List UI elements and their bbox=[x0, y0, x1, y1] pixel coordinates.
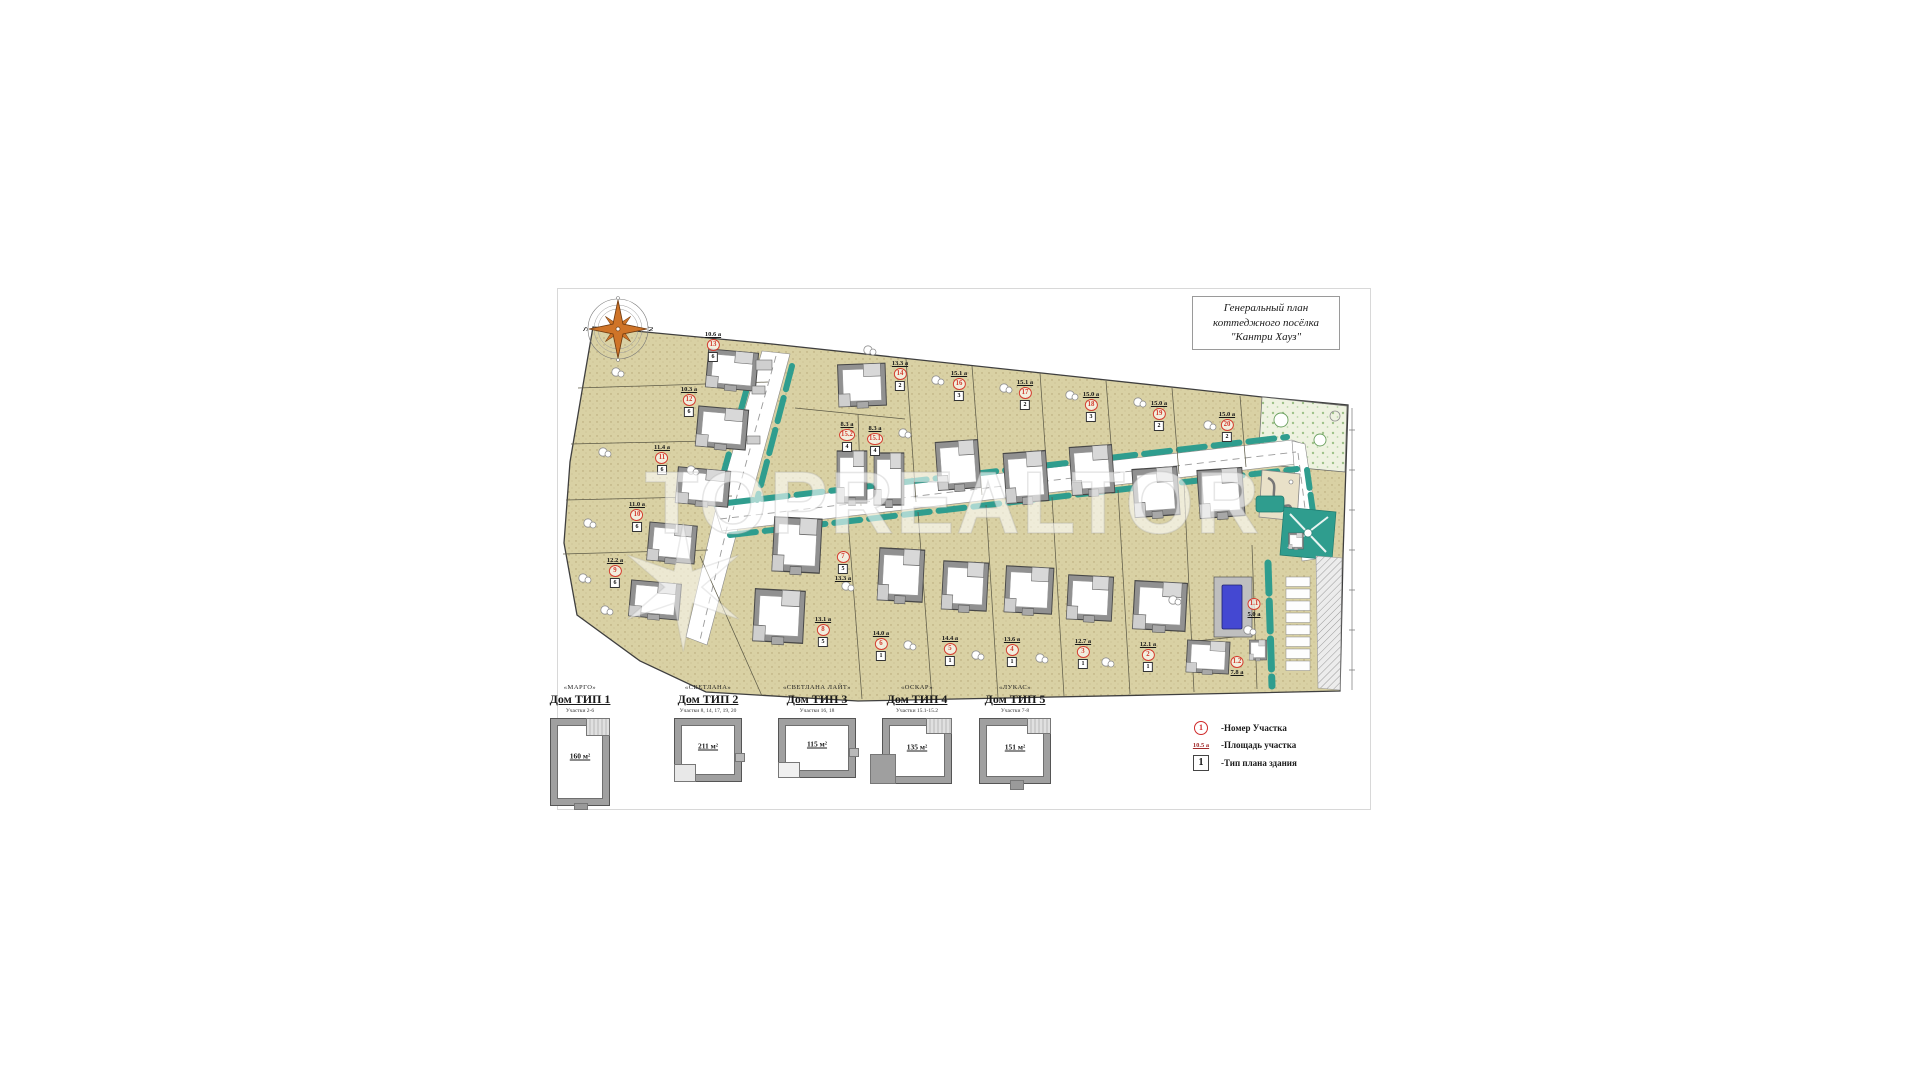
floor-plan-drawing: 115 м² bbox=[779, 719, 855, 777]
plot-house-type: 2 bbox=[1222, 432, 1232, 442]
floor-plan-porch bbox=[574, 803, 588, 810]
plot-area: 5.0 а bbox=[1248, 611, 1261, 618]
plot-house-type: 2 bbox=[1154, 421, 1164, 431]
plot-house-type: 2 bbox=[895, 381, 905, 391]
house-type-card-5: «ЛУКАС»Дом ТИП 5Участки 7-8151 м² bbox=[957, 684, 1073, 783]
house-type-name: «СВЕТЛАНА» bbox=[650, 684, 766, 691]
plan-title-box: Генеральный план коттеджного посёлка "Ка… bbox=[1192, 296, 1340, 350]
plot-label-18: 15.0 а183 bbox=[1083, 391, 1099, 422]
plot-label-9: 12.2 а96 bbox=[607, 557, 623, 588]
plot-label-12: 10.3 а126 bbox=[681, 386, 697, 417]
house-type-plots-note: Участки 2-6 bbox=[522, 708, 638, 714]
house-type-title: Дом ТИП 1 bbox=[522, 692, 638, 707]
plot-number: 2 bbox=[1142, 649, 1155, 661]
plot-house-type: 5 bbox=[838, 564, 848, 574]
plot-number: 18 bbox=[1085, 399, 1098, 411]
floor-plan-porch bbox=[926, 718, 952, 734]
plot-area: 11.0 а bbox=[629, 501, 645, 508]
plot-house-type: 4 bbox=[870, 446, 880, 456]
plot-house-type: 1 bbox=[876, 651, 886, 661]
house-type-card-3: «СВЕТЛАНА ЛАЙТ»Дом ТИП 3Участки 16, 1811… bbox=[759, 684, 875, 777]
house-type-title: Дом ТИП 2 bbox=[650, 692, 766, 707]
plot-label-1.2: 1.27.8 а bbox=[1231, 656, 1244, 676]
plot-label-15.2: 8.3 а15.24 bbox=[839, 421, 855, 452]
plot-label-4: 13.6 а41 bbox=[1004, 636, 1020, 667]
house-type-plots-note: Участки 16, 18 bbox=[759, 708, 875, 714]
house-type-plots-note: Участки 8, 14, 17, 19, 20 bbox=[650, 708, 766, 714]
legend-plot-number-symbol: 1 bbox=[1194, 721, 1208, 735]
plot-number: 15.2 bbox=[839, 429, 855, 441]
plan-title-line1: Генеральный план bbox=[1195, 301, 1337, 316]
house-type-area: 160 м² bbox=[570, 752, 590, 761]
plot-house-type: 1 bbox=[1078, 659, 1088, 669]
plot-area: 15.1 а bbox=[1017, 379, 1033, 386]
floor-plan-drawing: 151 м² bbox=[980, 719, 1050, 783]
plot-house-type: 6 bbox=[684, 407, 694, 417]
plan-title-line2: коттеджного посёлка bbox=[1195, 316, 1337, 331]
plot-label-16: 15.1 а163 bbox=[951, 370, 967, 401]
plot-area: 15.1 а bbox=[951, 370, 967, 377]
plot-number: 6 bbox=[875, 638, 888, 650]
plot-area: 7.8 а bbox=[1231, 669, 1244, 676]
plot-label-20: 15.0 а202 bbox=[1219, 411, 1235, 442]
compass-rose: S N bbox=[583, 294, 653, 364]
floor-plan-annex bbox=[586, 718, 610, 736]
house-type-title: Дом ТИП 3 bbox=[759, 692, 875, 707]
plot-area: 13.3 а bbox=[835, 575, 851, 582]
house-type-name: «СВЕТЛАНА ЛАЙТ» bbox=[759, 684, 875, 691]
floor-plan-porch bbox=[849, 748, 859, 757]
plot-area: 10.3 а bbox=[681, 386, 697, 393]
floor-plan-drawing: 135 м² bbox=[883, 719, 951, 783]
plot-house-type: 2 bbox=[1020, 400, 1030, 410]
floor-plan-annex bbox=[778, 762, 800, 778]
plot-label-8: 13.1 а85 bbox=[815, 616, 831, 647]
house-type-area: 151 м² bbox=[1005, 742, 1025, 751]
house-type-area: 135 м² bbox=[907, 742, 927, 751]
legend-row-house-type: 1 -Тип плана здания bbox=[1186, 755, 1346, 771]
legend-plot-area-label: -Площадь участка bbox=[1221, 740, 1296, 750]
plot-area: 13.3 а bbox=[892, 360, 908, 367]
plot-label-15.1: 8.3 а15.14 bbox=[867, 425, 883, 456]
house-type-plots-note: Участки 7-8 bbox=[957, 708, 1073, 714]
plot-label-14: 13.3 а142 bbox=[892, 360, 908, 391]
plot-house-type: 3 bbox=[954, 391, 964, 401]
plot-number: 15.1 bbox=[867, 433, 883, 445]
plot-area: 13.6 а bbox=[1004, 636, 1020, 643]
house-type-area: 115 м² bbox=[807, 740, 827, 749]
plot-house-type: 1 bbox=[1143, 662, 1153, 672]
plot-number: 16 bbox=[953, 378, 966, 390]
plot-number: 17 bbox=[1019, 387, 1032, 399]
plot-house-type: 6 bbox=[610, 578, 620, 588]
plot-label-17: 15.1 а172 bbox=[1017, 379, 1033, 410]
plot-number: 19 bbox=[1153, 408, 1166, 420]
plot-area: 10.6 а bbox=[705, 331, 721, 338]
house-type-name: «ЛУКАС» bbox=[957, 684, 1073, 691]
plot-house-type: 6 bbox=[708, 352, 718, 362]
plot-house-type: 1 bbox=[1007, 657, 1017, 667]
legend-row-plot-area: 10.5 а -Площадь участка bbox=[1186, 740, 1346, 750]
plot-area: 11.4 а bbox=[654, 444, 670, 451]
plot-number: 1.2 bbox=[1231, 656, 1244, 668]
plot-area: 12.1 а bbox=[1140, 641, 1156, 648]
plot-area: 12.7 а bbox=[1075, 638, 1091, 645]
house-type-card-1: «МАРГО»Дом ТИП 1Участки 2-6160 м² bbox=[522, 684, 638, 805]
plot-area: 15.0 а bbox=[1219, 411, 1235, 418]
plot-label-11: 11.4 а116 bbox=[654, 444, 670, 475]
legend-house-type-symbol: 1 bbox=[1193, 755, 1209, 771]
house-type-title: Дом ТИП 5 bbox=[957, 692, 1073, 707]
plot-label-5: 14.4 а51 bbox=[942, 635, 958, 666]
floor-plan-annex bbox=[1027, 718, 1051, 734]
legend-row-plot-number: 1 -Номер Участка bbox=[1186, 721, 1346, 735]
plot-label-6: 14.0 а61 bbox=[873, 630, 889, 661]
compass-east-label: N bbox=[647, 326, 653, 332]
plot-area: 13.1 а bbox=[815, 616, 831, 623]
plot-number: 9 bbox=[609, 565, 622, 577]
plot-number: 1.1 bbox=[1248, 598, 1261, 610]
swimming-pool bbox=[1222, 585, 1242, 629]
plot-label-7: 7513.3 а bbox=[835, 551, 851, 582]
plot-house-type: 6 bbox=[632, 522, 642, 532]
plot-number: 4 bbox=[1006, 644, 1019, 656]
plot-label-1.1: 1.15.0 а bbox=[1248, 598, 1261, 618]
plot-number: 12 bbox=[683, 394, 696, 406]
legend-house-type-label: -Тип плана здания bbox=[1221, 758, 1297, 768]
plot-area: 8.3 а bbox=[841, 421, 854, 428]
floor-plan-annex bbox=[870, 754, 896, 784]
plot-area: 15.0 а bbox=[1083, 391, 1099, 398]
plot-number: 3 bbox=[1077, 646, 1090, 658]
plot-number: 20 bbox=[1221, 419, 1234, 431]
house-type-name: «МАРГО» bbox=[522, 684, 638, 691]
plot-number: 10 bbox=[631, 509, 644, 521]
plot-number: 14 bbox=[894, 368, 907, 380]
plot-label-10: 11.0 а106 bbox=[629, 501, 645, 532]
plot-label-13: 10.6 а136 bbox=[705, 331, 721, 362]
plan-title-line3: "Кантри Хауз" bbox=[1195, 330, 1337, 345]
plot-area: 14.0 а bbox=[873, 630, 889, 637]
floor-plan-porch bbox=[735, 753, 745, 762]
plot-house-type: 6 bbox=[657, 465, 667, 475]
floor-plan-annex bbox=[674, 764, 696, 782]
floor-plan-porch bbox=[1010, 780, 1024, 790]
plot-house-type: 5 bbox=[818, 637, 828, 647]
house-type-area: 211 м² bbox=[698, 742, 718, 751]
plot-house-type: 1 bbox=[945, 656, 955, 666]
legend-plot-area-symbol: 10.5 а bbox=[1193, 742, 1209, 749]
legend-plot-number-label: -Номер Участка bbox=[1221, 723, 1287, 733]
map-legend: 1 -Номер Участка 10.5 а -Площадь участка… bbox=[1186, 721, 1346, 776]
plot-number: 11 bbox=[656, 452, 669, 464]
compass-west-label: S bbox=[583, 327, 589, 331]
plot-area: 8.3 а bbox=[869, 425, 882, 432]
plot-label-3: 12.7 а31 bbox=[1075, 638, 1091, 669]
plot-area: 15.0 а bbox=[1151, 400, 1167, 407]
house-type-card-2: «СВЕТЛАНА»Дом ТИП 2Участки 8, 14, 17, 19… bbox=[650, 684, 766, 781]
plot-label-19: 15.0 а192 bbox=[1151, 400, 1167, 431]
plot-number: 7 bbox=[837, 551, 850, 563]
plot-house-type: 4 bbox=[842, 442, 852, 452]
plot-number: 8 bbox=[817, 624, 830, 636]
floor-plan-drawing: 160 м² bbox=[551, 719, 609, 805]
plot-area: 12.2 а bbox=[607, 557, 623, 564]
plot-house-type: 3 bbox=[1086, 412, 1096, 422]
plot-label-2: 12.1 а21 bbox=[1140, 641, 1156, 672]
plot-area: 14.4 а bbox=[942, 635, 958, 642]
plot-number: 13 bbox=[707, 339, 720, 351]
floor-plan-drawing: 211 м² bbox=[675, 719, 741, 781]
plot-number: 5 bbox=[944, 643, 957, 655]
